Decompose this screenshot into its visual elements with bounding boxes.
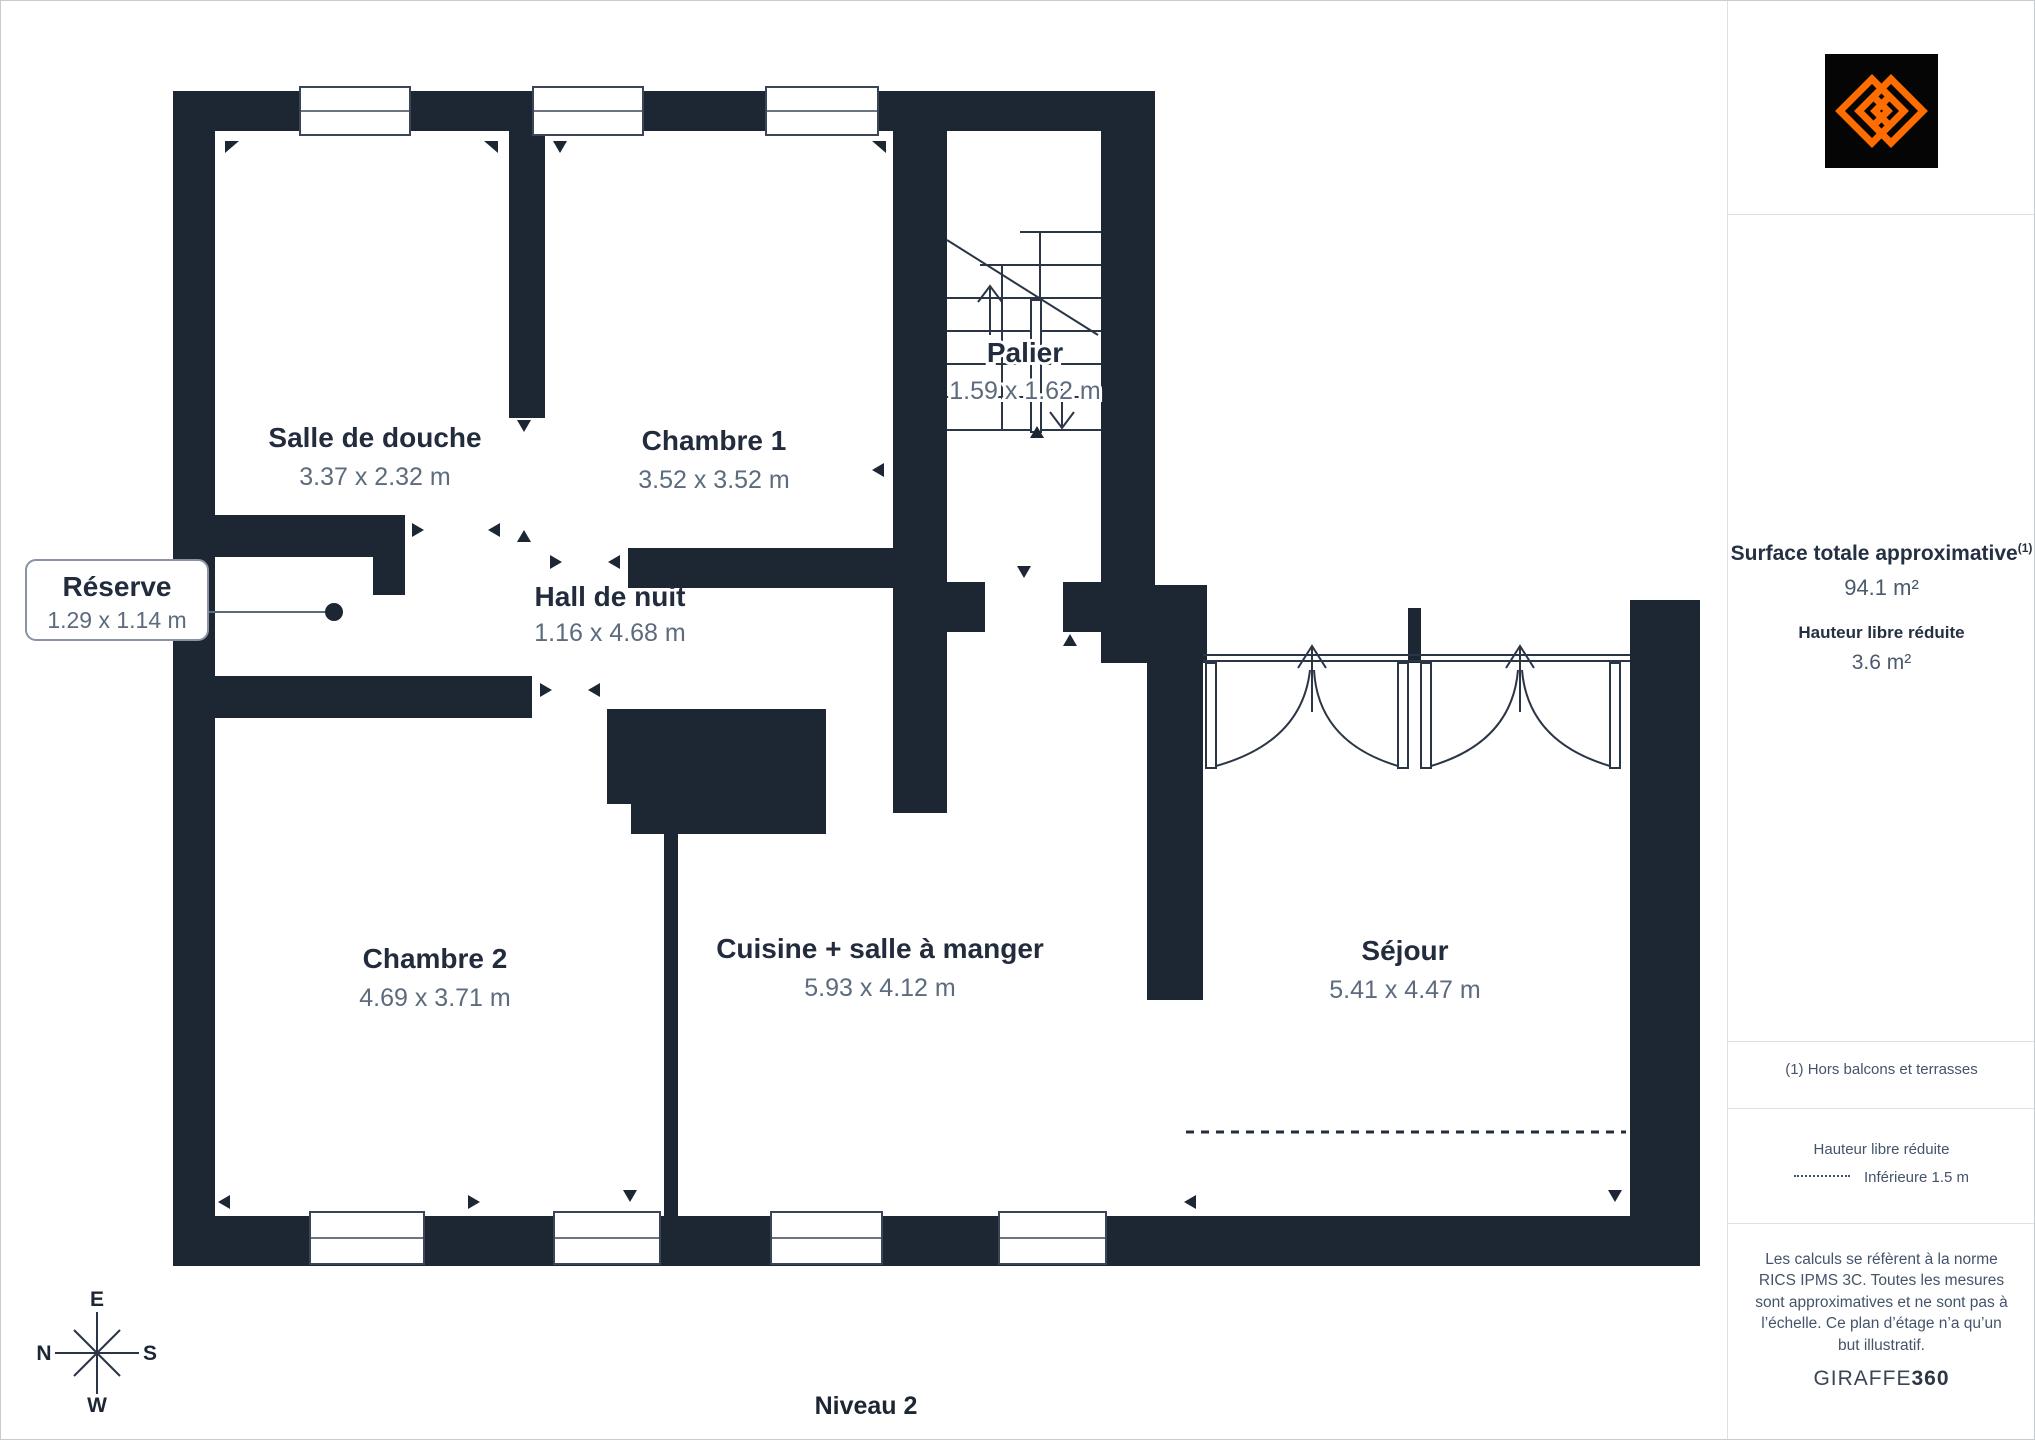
disclaimer-text: Les calculs se réfèrent à la norme RICS … <box>1754 1249 2009 1356</box>
reduced-height-value: 3.6 m² <box>1728 651 2035 675</box>
footnote: (1) Hors balcons et terrasses <box>1728 1061 2035 1078</box>
sidebar-divider <box>1728 1108 2035 1109</box>
reserve-callout: Réserve 1.29 x 1.14 m <box>26 560 343 640</box>
info-sidebar: Surface totale approximative(1) 94.1 m² … <box>1727 1 2035 1439</box>
room-label-salle-de-douche: Salle de douche <box>268 422 481 453</box>
dashed-line-sample <box>1794 1173 1850 1177</box>
surface-total-text: Surface totale approximative <box>1731 542 2018 565</box>
reserve-marker-dot <box>325 603 343 621</box>
brand-logo-text: GIRAFFE360 <box>1728 1367 2035 1391</box>
room-label-chambre-1: Chambre 1 <box>642 425 787 456</box>
room-label-sejour: Séjour <box>1361 935 1448 966</box>
room-label-cuisine: Cuisine + salle à manger <box>716 933 1044 964</box>
sidebar-divider <box>1728 1223 2035 1224</box>
room-labels: Salle de douche 3.37 x 2.32 m Chambre 1 … <box>268 337 1480 1012</box>
compass-w: W <box>87 1394 107 1417</box>
room-label-chambre-2: Chambre 2 <box>363 943 508 974</box>
giraffe360-logo <box>1825 54 1938 168</box>
logo-wrap <box>1728 54 2035 173</box>
compass-n: N <box>36 1342 51 1365</box>
sidebar-divider <box>1728 1041 2035 1042</box>
room-dims-sejour: 5.41 x 4.47 m <box>1329 976 1480 1004</box>
room-label-palier: Palier <box>987 337 1063 368</box>
surface-total-label: Surface totale approximative(1) <box>1728 541 2035 566</box>
level-label: Niveau 2 <box>815 1392 918 1420</box>
legend-row: Inférieure 1.5 m <box>1728 1169 2035 1186</box>
floorplan-page: Salle de douche 3.37 x 2.32 m Chambre 1 … <box>0 0 2035 1440</box>
legend-value: Inférieure 1.5 m <box>1864 1169 1969 1186</box>
room-label-hall-de-nuit: Hall de nuit <box>535 581 686 612</box>
brand-suffix: 360 <box>1911 1367 1949 1390</box>
room-dims-hall-de-nuit: 1.16 x 4.68 m <box>534 619 685 647</box>
surface-total-value: 94.1 m² <box>1728 575 2035 601</box>
room-dims-salle-de-douche: 3.37 x 2.32 m <box>299 463 450 491</box>
brand-name: GIRAFFE <box>1813 1367 1911 1390</box>
compass-e: E <box>90 1288 104 1311</box>
legend-title: Hauteur libre réduite <box>1728 1141 2035 1158</box>
walls <box>173 91 1700 1266</box>
french-doors <box>1203 646 1630 768</box>
room-dims-chambre-2: 4.69 x 3.71 m <box>359 984 510 1012</box>
compass-s: S <box>143 1342 157 1365</box>
surface-total-footnote-ref: (1) <box>2018 541 2033 555</box>
reduced-height-label: Hauteur libre réduite <box>1728 623 2035 643</box>
room-dims-chambre-1: 3.52 x 3.52 m <box>638 466 789 494</box>
compass-icon: E N S W <box>36 1288 157 1417</box>
room-dims-palier: 1.59 x 1.62 m <box>949 377 1100 405</box>
room-label-reserve: Réserve <box>63 571 172 602</box>
sidebar-divider <box>1728 214 2035 215</box>
room-dims-reserve: 1.29 x 1.14 m <box>47 607 186 633</box>
room-dims-cuisine: 5.93 x 4.12 m <box>804 974 955 1002</box>
